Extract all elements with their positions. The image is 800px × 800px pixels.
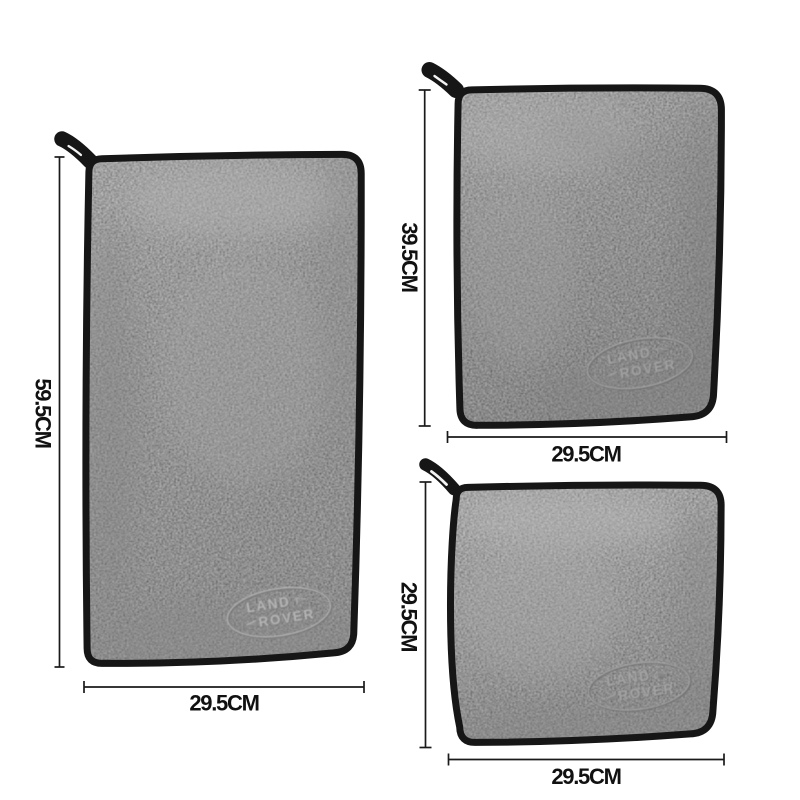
svg-text:59.5CM: 59.5CM <box>31 378 56 447</box>
svg-text:29.5CM: 29.5CM <box>189 691 258 716</box>
svg-text:39.5CM: 39.5CM <box>397 222 422 291</box>
svg-text:29.5CM: 29.5CM <box>551 764 620 789</box>
svg-text:29.5CM: 29.5CM <box>551 442 620 467</box>
svg-text:29.5CM: 29.5CM <box>397 582 422 651</box>
